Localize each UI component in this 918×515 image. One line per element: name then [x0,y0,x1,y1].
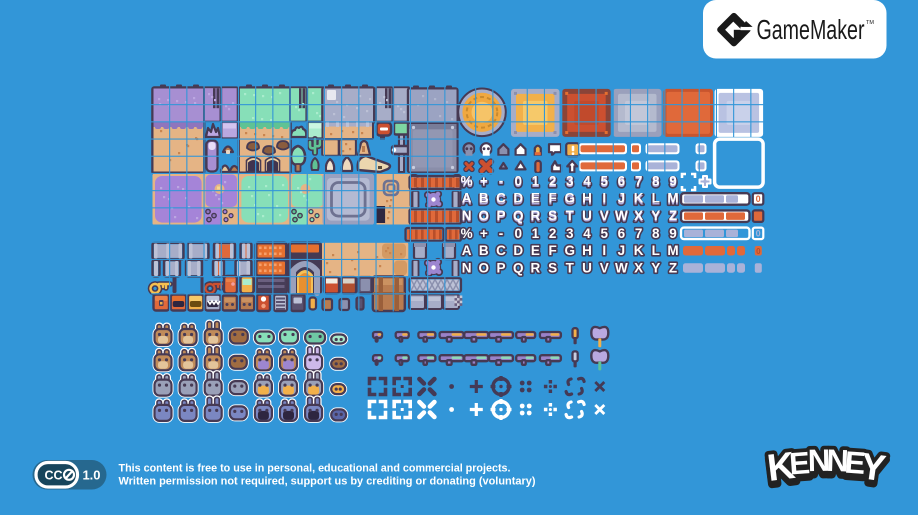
svg-text:Z: Z [669,260,677,275]
svg-text:Q: Q [513,208,524,223]
svg-text:Y: Y [651,208,660,223]
svg-text:6: 6 [618,226,626,241]
svg-text:E: E [531,243,540,258]
svg-text:4: 4 [583,174,591,189]
svg-text:This content is free to use in: This content is free to use in personal,… [119,463,511,475]
svg-text:Q: Q [513,260,524,275]
svg-text:%: % [461,174,473,189]
svg-text:N: N [462,208,472,223]
svg-text:S: S [548,260,557,275]
svg-text:C: C [496,243,506,258]
svg-text:M: M [667,243,678,258]
svg-text:W: W [615,260,628,275]
svg-text:V: V [600,208,609,223]
svg-text:O: O [479,260,490,275]
svg-text:G: G [565,243,576,258]
svg-text:F: F [548,191,556,206]
svg-text:K: K [634,191,644,206]
svg-text:7: 7 [635,226,643,241]
svg-text:K: K [634,243,644,258]
svg-text:7: 7 [635,174,643,189]
svg-text:-: - [499,174,504,189]
svg-text:O: O [479,208,490,223]
svg-text:R: R [531,208,541,223]
svg-text:0: 0 [514,226,522,241]
svg-text:U: U [582,208,592,223]
svg-text:+: + [480,174,488,189]
svg-text:9: 9 [669,174,677,189]
svg-text:I: I [602,243,606,258]
svg-text:H: H [582,191,592,206]
svg-text:L: L [652,191,660,206]
svg-text:I: I [602,191,606,206]
svg-text:3: 3 [566,226,574,241]
svg-text:P: P [496,208,505,223]
svg-text:A: A [462,191,472,206]
svg-text:4: 4 [583,226,591,241]
svg-text:V: V [600,260,609,275]
svg-text:1.0: 1.0 [82,468,100,483]
svg-text:CC: CC [44,469,62,483]
svg-text:Z: Z [669,208,677,223]
svg-text:J: J [618,243,626,258]
svg-text:A: A [462,243,472,258]
svg-text:-: - [499,226,504,241]
svg-text:D: D [513,243,523,258]
svg-text:GameMaker: GameMaker [757,14,865,45]
svg-text:1: 1 [532,226,540,241]
svg-text:0: 0 [756,194,761,204]
svg-text:%: % [461,226,473,241]
svg-text:J: J [618,191,626,206]
svg-text:6: 6 [618,174,626,189]
svg-text:M: M [667,191,678,206]
svg-text:TM: TM [866,20,874,26]
svg-text:Y: Y [651,260,660,275]
svg-text:N: N [462,260,472,275]
svg-text:G: G [565,191,576,206]
svg-text:H: H [582,243,592,258]
svg-text:2: 2 [549,226,557,241]
svg-text:0: 0 [756,247,761,256]
svg-text:3: 3 [566,174,574,189]
svg-text:P: P [496,260,505,275]
svg-text:9: 9 [669,226,677,241]
svg-text:B: B [479,243,489,258]
svg-text:X: X [634,208,643,223]
svg-text:T: T [566,208,575,223]
svg-text:8: 8 [652,174,660,189]
svg-text:S: S [548,208,557,223]
svg-text:T: T [566,260,575,275]
svg-text:8: 8 [652,226,660,241]
svg-text:0: 0 [514,174,522,189]
svg-text:W: W [615,208,628,223]
svg-text:X: X [634,260,643,275]
svg-text:R: R [531,260,541,275]
svg-text:L: L [652,243,660,258]
svg-text:F: F [548,243,556,258]
svg-text:+: + [480,226,488,241]
svg-text:5: 5 [600,174,608,189]
svg-text:C: C [496,191,506,206]
svg-text:0: 0 [756,229,761,239]
svg-text:E: E [531,191,540,206]
svg-text:5: 5 [600,226,608,241]
svg-text:B: B [479,191,489,206]
svg-text:U: U [582,260,592,275]
svg-text:Written permission not require: Written permission not required, support… [119,475,536,487]
svg-text:2: 2 [549,174,557,189]
svg-text:D: D [513,191,523,206]
svg-text:1: 1 [532,174,540,189]
